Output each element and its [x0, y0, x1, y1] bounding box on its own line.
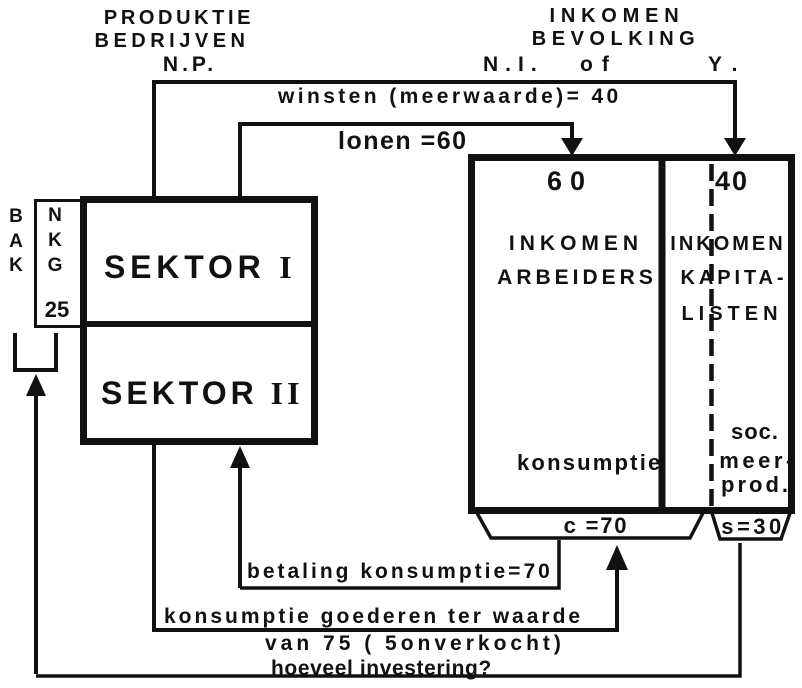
- svg-text:betaling konsumptie=70: betaling konsumptie=70: [247, 560, 553, 583]
- svg-text:K: K: [9, 255, 23, 276]
- svg-text:van 75 ( 5onverkocht): van 75 ( 5onverkocht): [265, 632, 565, 655]
- svg-text:BEVOLKING: BEVOLKING: [532, 28, 700, 50]
- svg-text:N: N: [48, 205, 62, 226]
- svg-text:winsten (meerwaarde)= 40: winsten (meerwaarde)= 40: [277, 85, 622, 108]
- svg-text:B: B: [9, 206, 23, 227]
- svg-text:s=30: s=30: [721, 514, 785, 539]
- svg-text:INKOMEN: INKOMEN: [549, 5, 684, 27]
- svg-text:N.I.: N.I.: [483, 53, 544, 76]
- svg-text:konsumptie goederen ter waarde: konsumptie goederen ter waarde: [164, 605, 583, 628]
- svg-text:INKOMEN: INKOMEN: [670, 233, 785, 255]
- svg-text:LISTEN: LISTEN: [681, 303, 782, 325]
- svg-text:KAPITA-: KAPITA-: [681, 267, 788, 289]
- svg-text:konsumptie: konsumptie: [517, 450, 662, 475]
- svg-text:meer-: meer-: [719, 448, 796, 473]
- svg-text:SEKTOR II: SEKTOR II: [101, 375, 304, 411]
- svg-text:PRODUKTIE: PRODUKTIE: [104, 7, 254, 29]
- svg-text:K: K: [48, 230, 62, 251]
- svg-text:ARBEIDERS: ARBEIDERS: [497, 266, 657, 289]
- svg-text:SEKTOR I: SEKTOR I: [104, 249, 297, 285]
- svg-text:soc.: soc.: [731, 419, 779, 444]
- svg-text:c =70: c =70: [564, 513, 629, 538]
- svg-text:Y.: Y.: [708, 53, 750, 76]
- svg-text:A: A: [9, 231, 23, 252]
- svg-text:40: 40: [715, 166, 749, 196]
- svg-text:INKOMEN: INKOMEN: [509, 232, 643, 255]
- svg-text:prod.: prod.: [721, 472, 791, 497]
- svg-text:lonen =60: lonen =60: [338, 127, 468, 155]
- svg-text:of: of: [580, 53, 618, 76]
- svg-text:25: 25: [45, 297, 69, 322]
- svg-text:N.P.: N.P.: [163, 53, 217, 76]
- svg-text:BEDRIJVEN: BEDRIJVEN: [95, 30, 250, 52]
- svg-text:60: 60: [547, 166, 593, 196]
- svg-text:G: G: [48, 255, 63, 276]
